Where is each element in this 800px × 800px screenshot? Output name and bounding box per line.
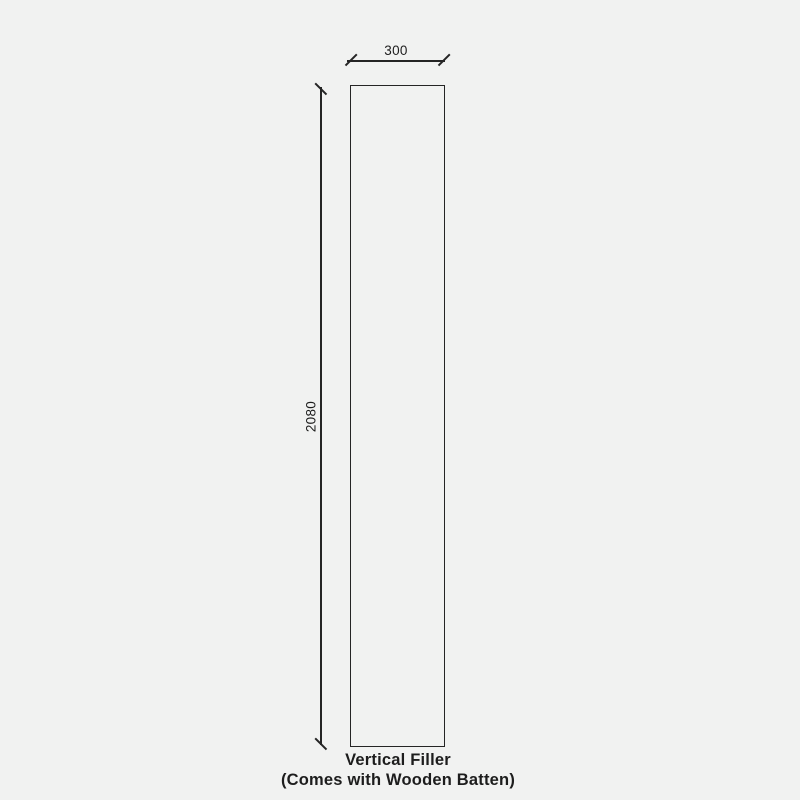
width-dimension-label: 300 xyxy=(347,43,445,58)
part-caption-line2: (Comes with Wooden Batten) xyxy=(198,771,598,791)
part-caption-line1: Vertical Filler xyxy=(198,751,598,771)
height-dimension-line xyxy=(320,87,322,745)
width-dimension-line xyxy=(347,60,445,62)
height-dimension-label: 2080 xyxy=(304,387,319,447)
part-caption: Vertical Filler (Comes with Wooden Batte… xyxy=(198,751,598,790)
diagram-canvas: 300 2080 Vertical Filler (Comes with Woo… xyxy=(0,0,800,800)
vertical-filler-outline xyxy=(350,85,445,747)
